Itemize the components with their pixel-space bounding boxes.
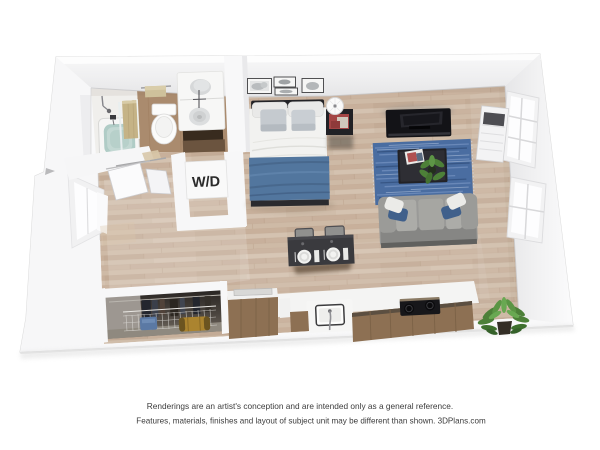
svg-text:Renderings are an artist's con: Renderings are an artist's conception an… [147, 401, 453, 411]
svg-text:Features, materials, finishes: Features, materials, finishes and layout… [136, 417, 486, 426]
svg-text:W/D: W/D [192, 174, 221, 191]
